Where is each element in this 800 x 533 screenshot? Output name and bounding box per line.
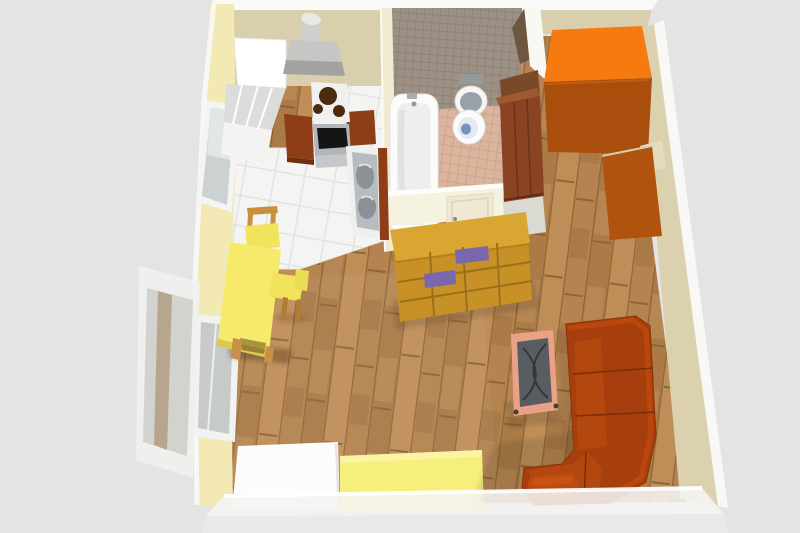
chair-backrest [294,269,309,291]
bottom-wall-outer [202,514,728,533]
bathtub-faucet [407,93,417,99]
wardrobe-front[interactable] [544,78,652,154]
scene-shapes [0,0,800,533]
toilet-tank [459,74,484,84]
bathroom-door-handle [453,217,457,221]
stove-burner [313,104,323,114]
bathtub-drain [412,102,417,107]
floorplan-3d-view [0,0,800,533]
toilet-lid-inner [460,92,482,112]
oven-window [317,128,348,149]
sink-bowl [358,195,376,219]
toilet-water [461,124,471,135]
kitchen-back-window [234,38,286,90]
range-hood-canopy [286,40,342,62]
coffee-table-foot [554,404,559,409]
hall-cabinet-front[interactable] [500,96,544,202]
counter-left [284,114,314,160]
stove-burner [319,87,337,105]
chair-shadow [274,313,306,323]
wardrobe-side-panel[interactable] [602,146,662,240]
range-hood-canopy-base [283,60,345,76]
oven-base [315,154,352,168]
counter-right [346,110,376,146]
coffee-table-foot [514,410,519,415]
stove-burner [333,105,345,117]
scene-svg[interactable] [0,0,800,533]
wardrobe-top[interactable] [544,26,652,82]
